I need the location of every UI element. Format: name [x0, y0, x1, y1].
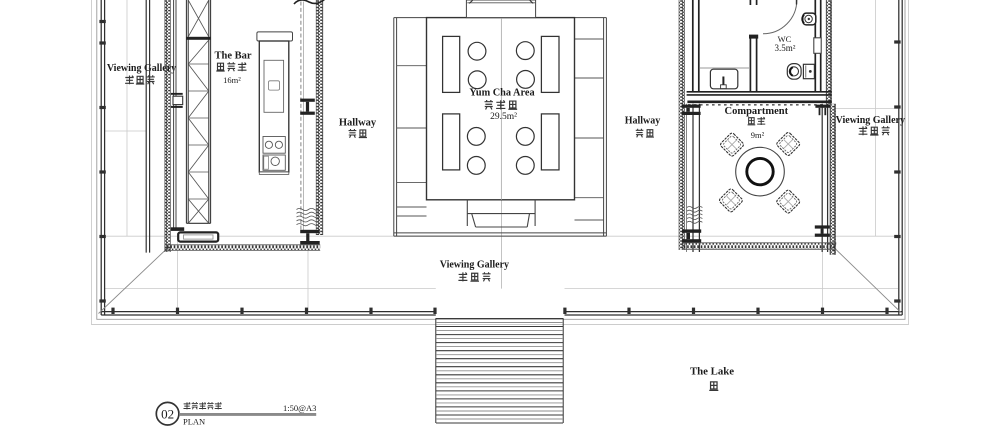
svg-text:1:50@A3: 1:50@A3: [283, 403, 316, 413]
svg-text:02: 02: [161, 406, 174, 421]
svg-text:9m²: 9m²: [751, 130, 765, 140]
svg-text:Hallway: Hallway: [625, 116, 661, 127]
svg-text:29.5m²: 29.5m²: [490, 112, 517, 122]
svg-text:The Bar: The Bar: [215, 51, 252, 62]
svg-text:PLAN: PLAN: [183, 417, 205, 427]
svg-text:Yum Cha Area: Yum Cha Area: [469, 87, 534, 98]
svg-text:3.5m²: 3.5m²: [775, 43, 796, 53]
svg-text:Hallway: Hallway: [339, 118, 377, 129]
svg-text:Viewing Gallery: Viewing Gallery: [440, 260, 509, 271]
svg-text:Compartment: Compartment: [725, 106, 789, 117]
svg-text:The Lake: The Lake: [690, 366, 734, 378]
svg-text:16m²: 16m²: [223, 75, 241, 85]
svg-text:Viewing Gallery: Viewing Gallery: [836, 115, 905, 126]
